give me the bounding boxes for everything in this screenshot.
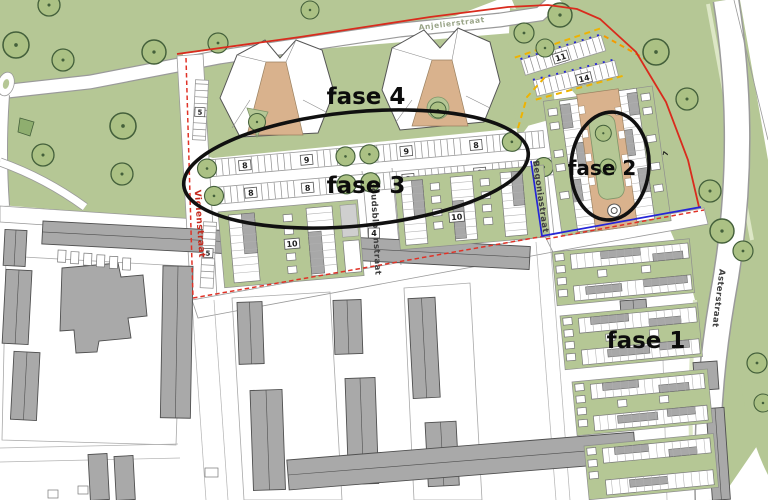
- parking-count-box: 8: [301, 182, 314, 193]
- housing-count-box: 4: [369, 228, 380, 238]
- parking-count-box: 8: [238, 160, 251, 171]
- tree-icon: [754, 394, 768, 412]
- parking-count-box: 9: [300, 154, 313, 165]
- tree-icon: [514, 23, 534, 43]
- tree-icon: [536, 39, 554, 57]
- housing-block-east: 10: [394, 165, 550, 250]
- svg-text:10: 10: [451, 212, 463, 222]
- site-plan-map: 8 9 9 8 8 8 8 8 5 5: [0, 0, 768, 500]
- tree-icon: [676, 88, 698, 110]
- violenstraat-parking: 5: [192, 80, 208, 141]
- tree-icon: [32, 144, 54, 166]
- tower-building-west: [220, 40, 334, 137]
- tree-icon: [301, 1, 319, 19]
- tree-icon: [111, 163, 133, 185]
- tree-icon: [710, 219, 734, 243]
- tree-icon: [110, 113, 136, 139]
- svg-text:5: 5: [197, 108, 202, 116]
- tree-icon: [733, 241, 753, 261]
- map-canvas: 8 9 9 8 8 8 8 8 5 5: [0, 0, 768, 500]
- parking-count-box: 5: [195, 107, 205, 117]
- svg-text:10: 10: [286, 239, 298, 249]
- phase-label-fase4: fase 4: [327, 84, 406, 110]
- housing-block-west: 10: [218, 200, 364, 288]
- parking-count-box: 9: [400, 146, 413, 157]
- tree-icon: [699, 180, 721, 202]
- parking-count-box: 8: [244, 187, 257, 198]
- tree-icon: [747, 353, 767, 373]
- housing-count-box: 10: [284, 238, 300, 249]
- housing-count-box: 10: [449, 211, 465, 222]
- parking-count-box: 8: [470, 139, 483, 150]
- svg-text:4: 4: [371, 229, 377, 238]
- phase-label-fase1: fase 1: [607, 328, 686, 354]
- tree-icon: [52, 49, 74, 71]
- tree-icon: [142, 40, 166, 64]
- phase-label-fase3: fase 3: [327, 173, 406, 199]
- tree-icon: [38, 0, 60, 16]
- tree-icon: [3, 32, 29, 58]
- phase-label-fase2: fase 2: [568, 156, 637, 180]
- tree-icon: [643, 39, 669, 65]
